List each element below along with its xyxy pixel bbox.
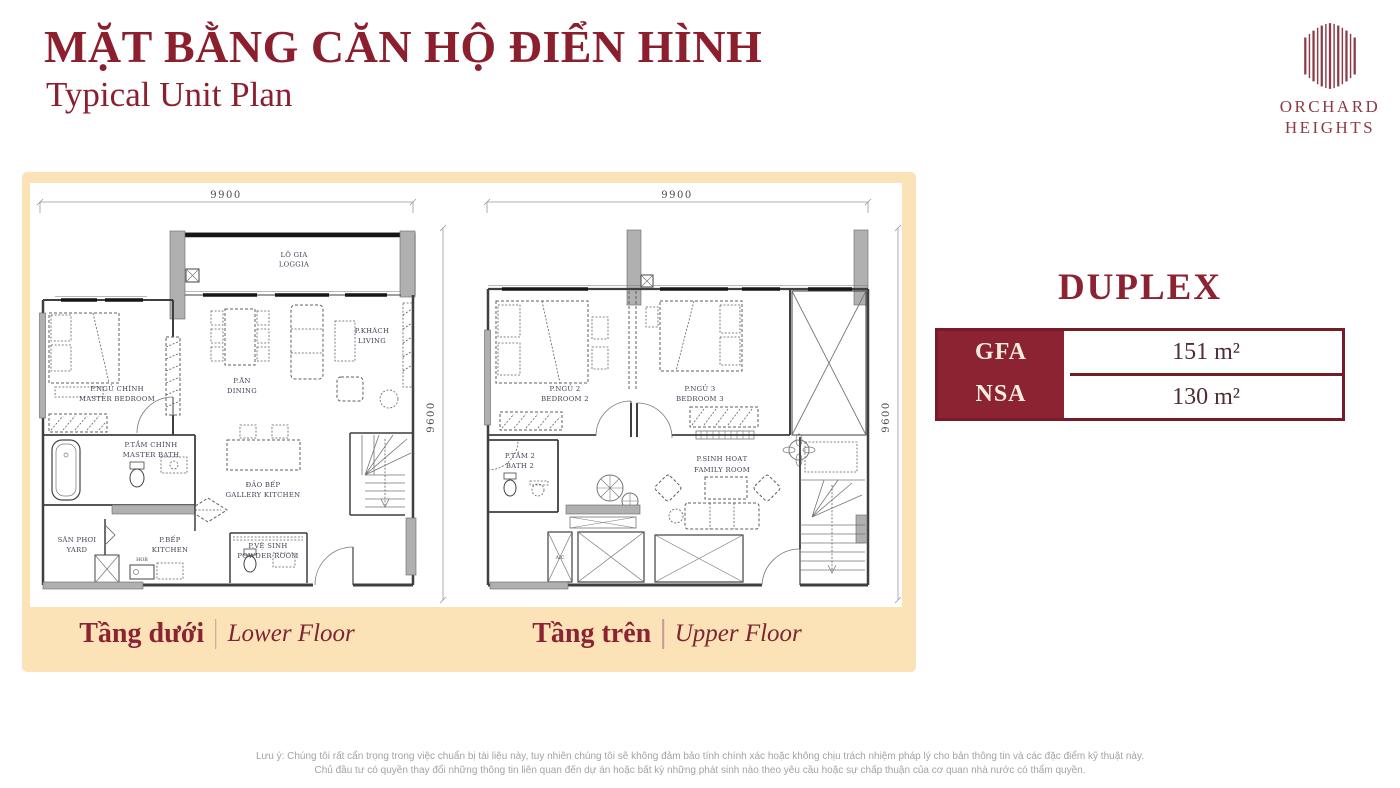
lower-floor-plan: 9900 9600 — [35, 185, 465, 605]
label-bedroom3-en: BEDROOM 3 — [676, 395, 724, 403]
lower-dim-width: 9900 — [210, 190, 241, 201]
floor-label-upper: Tầng trên Upper Floor — [532, 618, 802, 650]
upper-void — [792, 291, 866, 472]
lower-master-bedroom-furniture — [49, 313, 173, 433]
floor-label-upper-en: Upper Floor — [675, 620, 802, 648]
label-bath2-vi: P.TẮM 2 — [505, 450, 535, 460]
label-loggia-vi: LÔ GIA — [280, 250, 307, 259]
label-powder-vi: P.VỆ SINH — [248, 541, 287, 550]
spec-label-column: GFA NSA — [938, 331, 1064, 418]
upper-bedroom3 — [646, 289, 790, 439]
label-dining-en: DINING — [227, 387, 257, 395]
nsa-value-cell: 130 m² — [1070, 373, 1342, 418]
label-dining-vi: P.ĂN — [233, 376, 250, 385]
label-yard-en: YARD — [66, 546, 88, 554]
label-master-bath-vi: P.TẮM CHÍNH — [125, 439, 178, 449]
unit-type-title: DUPLEX — [935, 266, 1345, 309]
lower-dim-height: 9600 — [426, 401, 437, 432]
page-subtitle: Typical Unit Plan — [46, 76, 292, 115]
spec-value-column: 151 m² 130 m² — [1070, 331, 1342, 418]
disclaimer: Lưu ý: Chúng tôi rất cẩn trọng trong việ… — [0, 750, 1400, 777]
label-master-bedroom-en: MASTER BEDROOM — [79, 395, 155, 403]
floor-label-divider — [215, 619, 217, 649]
gfa-label-cell: GFA — [938, 331, 1064, 373]
upper-bedroom2 — [488, 301, 608, 435]
upper-dim-width: 9900 — [661, 190, 692, 201]
plan-panel: 9900 9600 — [22, 172, 916, 672]
logo-name-line1: ORCHARD — [1274, 96, 1386, 117]
label-bedroom2-en: BEDROOM 2 — [541, 395, 589, 403]
label-master-bath-en: MASTER BATH — [123, 451, 180, 459]
label-family-room-en: FAMILY ROOM — [694, 466, 750, 474]
label-kitchen-vi: P.BẾP — [159, 534, 181, 544]
label-living-vi: P.KHÁCH — [355, 326, 390, 335]
upper-floor-plan: 9900 9600 — [480, 185, 905, 605]
upper-dim-height: 9600 — [881, 401, 892, 432]
label-kitchen-en: KITCHEN — [152, 546, 188, 554]
label-loggia-en: LOGGIA — [279, 261, 309, 269]
label-master-bedroom-vi: P.NGỦ CHÍNH — [90, 383, 144, 393]
upper-stairs — [762, 437, 865, 585]
label-gallery-kitchen-vi: ĐẢO BẾP — [246, 479, 281, 489]
spec-table: GFA NSA 151 m² 130 m² — [935, 328, 1345, 421]
label-hob: HOB — [136, 557, 148, 563]
label-gallery-kitchen-en: GALLERY KITCHEN — [226, 491, 301, 499]
upper-bath2 — [488, 440, 558, 512]
floor-label-divider — [662, 619, 664, 649]
upper-family-room-furniture — [597, 434, 815, 529]
floor-label-upper-vi: Tầng trên — [532, 618, 651, 650]
upper-walls — [485, 230, 869, 585]
lower-kitchen-island — [189, 425, 300, 522]
gfa-value-cell: 151 m² — [1070, 331, 1342, 373]
lower-entry-door — [315, 547, 353, 585]
floor-label-lower-vi: Tầng dưới — [79, 618, 204, 650]
label-family-room-vi: P.SINH HOẠT — [697, 455, 748, 463]
upper-corridor-doors — [596, 291, 672, 438]
label-ac: A/C — [555, 555, 565, 561]
disclaimer-line2: Chủ đầu tư có quyền thay đổi những thông… — [0, 764, 1400, 778]
logo-name-line2: HEIGHTS — [1274, 117, 1386, 138]
floor-label-lower: Tầng dưới Lower Floor — [79, 618, 355, 650]
label-bedroom2-vi: P.NGỦ 2 — [549, 383, 580, 393]
floor-label-lower-en: Lower Floor — [228, 620, 355, 648]
label-bath2-en: BATH 2 — [506, 462, 534, 470]
orchard-heights-logo: ORCHARD HEIGHTS — [1274, 20, 1386, 139]
label-living-en: LIVING — [358, 337, 386, 345]
logo-emblem-icon — [1298, 20, 1362, 92]
label-powder-en: POWDER ROOM — [237, 552, 298, 560]
label-yard-vi: SÂN PHƠI — [58, 535, 97, 544]
label-bedroom3-vi: P.NGỦ 3 — [684, 383, 715, 393]
upper-shafts — [490, 505, 867, 589]
nsa-label-cell: NSA — [938, 373, 1064, 415]
page-title: MẶT BẰNG CĂN HỘ ĐIỂN HÌNH — [44, 22, 762, 73]
disclaimer-line1: Lưu ý: Chúng tôi rất cẩn trọng trong việ… — [0, 750, 1400, 764]
